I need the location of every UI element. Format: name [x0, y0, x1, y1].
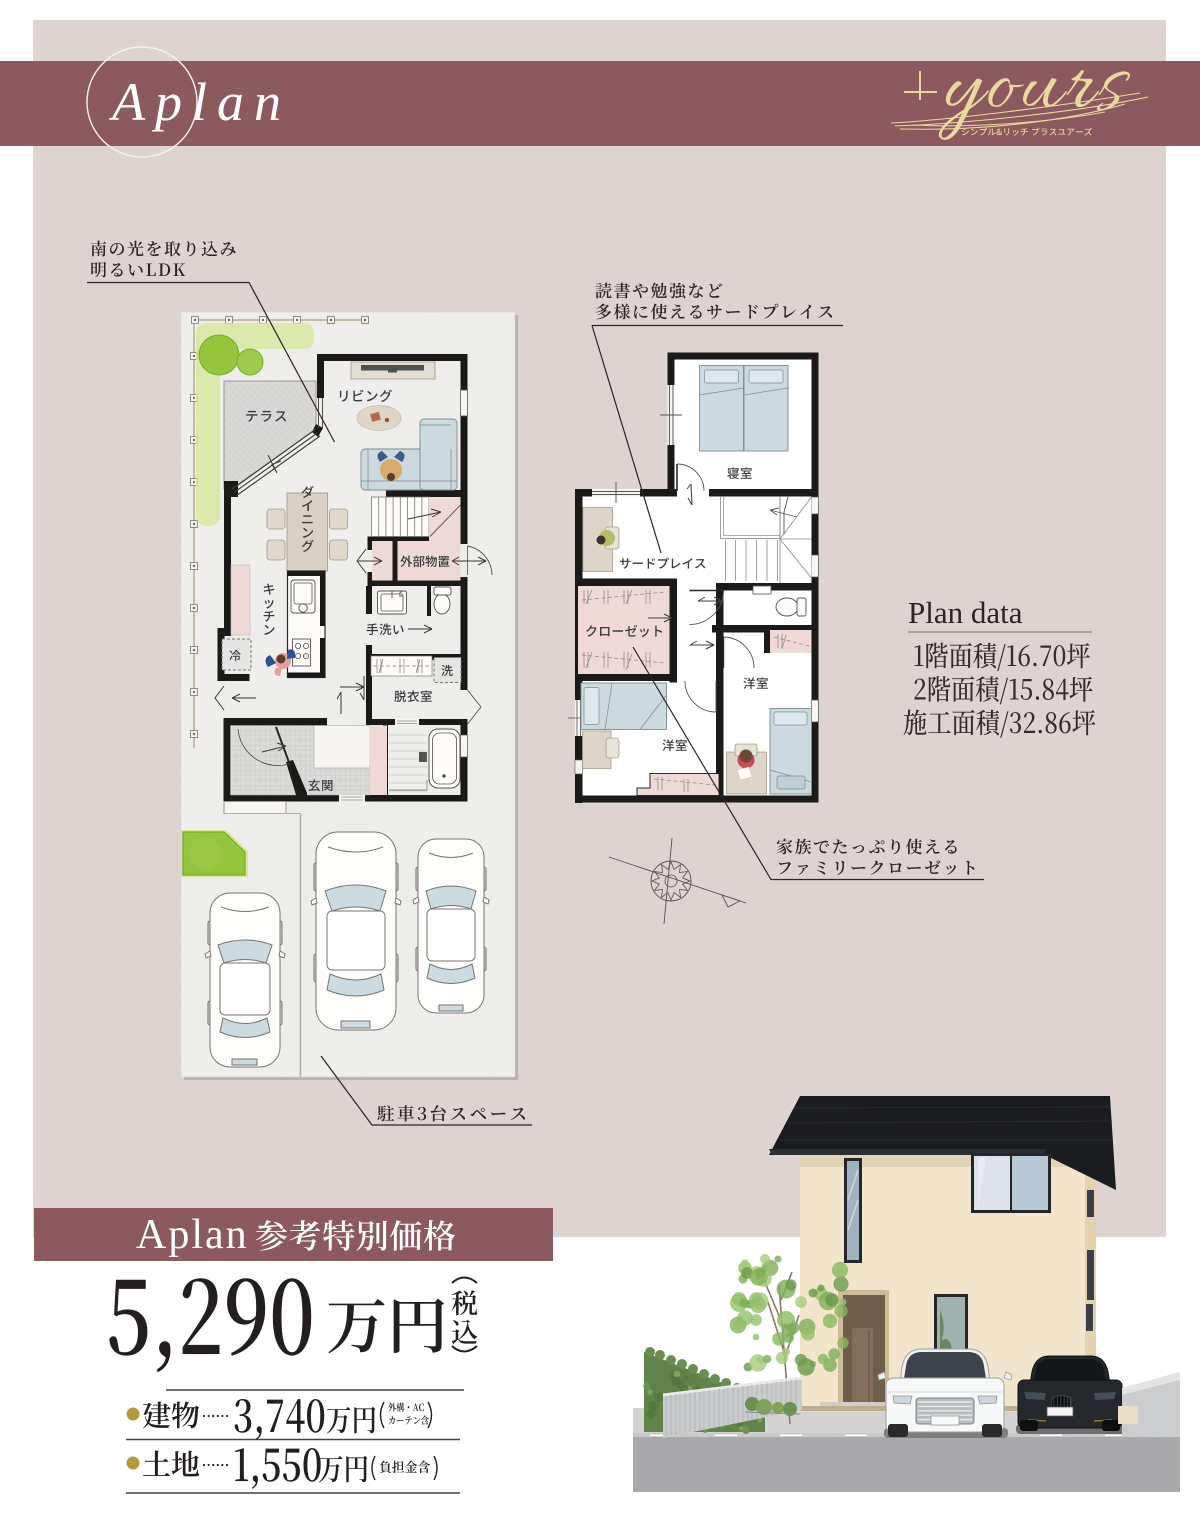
- svg-text:Aplan: Aplan: [136, 1212, 249, 1258]
- svg-text:Plan data: Plan data: [908, 595, 1023, 630]
- svg-text:Aplan: Aplan: [109, 72, 291, 132]
